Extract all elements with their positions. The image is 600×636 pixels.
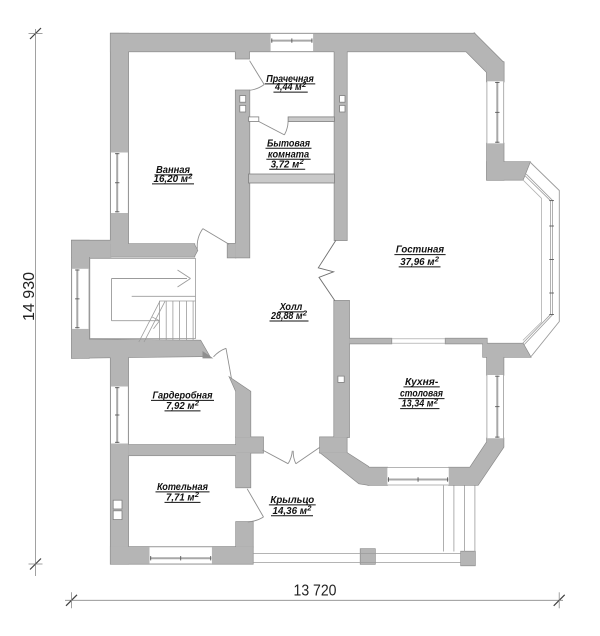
svg-text:Гардеробная: Гардеробная	[153, 390, 213, 402]
svg-text:16,20 м: 16,20 м	[154, 174, 189, 185]
svg-text:2: 2	[301, 80, 307, 89]
svg-text:2: 2	[434, 255, 440, 264]
svg-text:2: 2	[433, 396, 439, 405]
svg-text:14,36 м: 14,36 м	[273, 506, 308, 517]
svg-text:2: 2	[194, 399, 200, 408]
svg-text:2: 2	[194, 490, 200, 499]
svg-text:2: 2	[299, 157, 305, 166]
svg-text:4,44 м: 4,44 м	[274, 82, 302, 93]
svg-text:Котельная: Котельная	[157, 482, 208, 493]
svg-text:2: 2	[302, 309, 308, 318]
svg-text:3,72 м: 3,72 м	[271, 159, 300, 170]
svg-text:13,34 м: 13,34 м	[402, 399, 434, 410]
svg-text:7,71 м: 7,71 м	[166, 493, 195, 504]
svg-text:28,88 м: 28,88 м	[270, 311, 303, 322]
svg-text:2: 2	[306, 503, 312, 512]
svg-text:Бытовая: Бытовая	[267, 138, 310, 149]
svg-text:13 720: 13 720	[294, 583, 337, 600]
svg-text:2: 2	[187, 172, 193, 181]
svg-text:37,96 м: 37,96 м	[400, 257, 435, 268]
svg-text:7,92 м: 7,92 м	[166, 401, 195, 412]
svg-text:Кухня-: Кухня-	[405, 377, 439, 388]
svg-text:14 930: 14 930	[21, 272, 38, 321]
